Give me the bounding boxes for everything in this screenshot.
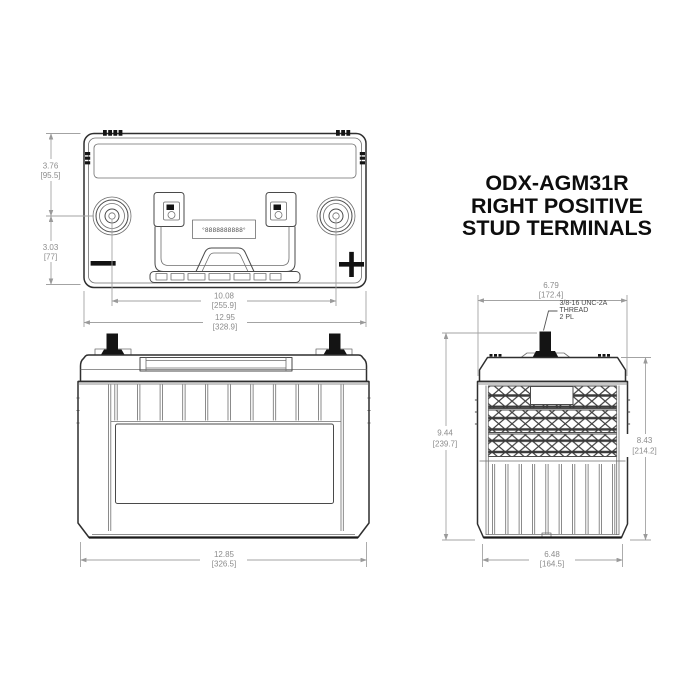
date-stamp-text: °8888888888° xyxy=(202,226,246,234)
side-lattice-pattern xyxy=(489,386,617,457)
callout-leader-line xyxy=(544,311,558,331)
dim-front-overall-in: 12.85 xyxy=(214,550,235,559)
negative-symbol: − xyxy=(86,240,120,286)
side-stud xyxy=(533,332,559,358)
thread-callout-line2: THREAD xyxy=(560,307,589,314)
top-view: °8888888888° − + xyxy=(84,130,368,288)
thread-callout-line1: 3/8-16 UNC-2A xyxy=(560,300,608,307)
dim-terminal-to-edge-in: 3.03 xyxy=(43,243,59,252)
product-title-line2: RIGHT POSITIVE xyxy=(432,195,682,218)
dim-edge-to-terminal-in: 3.76 xyxy=(43,162,59,171)
dim-terminal-spacing-mm: [255.9] xyxy=(212,301,236,310)
dim-terminal-to-edge-mm: [77] xyxy=(44,253,57,262)
dim-side-bottom-in: 6.48 xyxy=(544,550,560,559)
top-view-lid-band xyxy=(94,144,356,178)
dim-terminal-spacing-in: 10.08 xyxy=(214,292,235,301)
side-lid xyxy=(480,358,626,382)
front-view xyxy=(77,334,371,538)
handle-base-slots xyxy=(156,274,281,281)
positive-stud-front xyxy=(323,334,348,356)
positive-symbol: + xyxy=(335,241,369,287)
front-label-area xyxy=(116,424,334,504)
battery-technical-drawing: °8888888888° − + 3.76 [95.5] 3.03 [77] 1… xyxy=(0,0,700,700)
battery-spec-drawing-page: °8888888888° − + 3.76 [95.5] 3.03 [77] 1… xyxy=(0,0,700,700)
product-title-line3: STUD TERMINALS xyxy=(432,217,682,240)
dim-top-overall-in: 12.95 xyxy=(215,313,236,322)
product-title-line1: ODX-AGM31R xyxy=(432,172,682,195)
negative-stud-front xyxy=(101,334,126,356)
thread-callout-line3: 2 PL xyxy=(560,314,575,321)
dim-overall-height-mm: [239.7] xyxy=(433,440,457,449)
product-title: ODX-AGM31R RIGHT POSITIVE STUD TERMINALS xyxy=(432,172,682,240)
dim-case-height-mm: [214.2] xyxy=(632,447,656,456)
dim-front-overall-mm: [326.5] xyxy=(212,560,236,569)
dim-side-bottom-mm: [164.5] xyxy=(540,560,564,569)
dim-top-overall-mm: [328.9] xyxy=(213,323,237,332)
side-view xyxy=(475,332,630,538)
dim-case-height-in: 8.43 xyxy=(637,436,653,445)
dim-side-width-mm: [172.4] xyxy=(539,291,563,300)
dim-edge-to-terminal-mm: [95.5] xyxy=(40,171,60,180)
front-view-dimensions: 12.85 [326.5] xyxy=(81,542,367,569)
dim-side-width-in: 6.79 xyxy=(543,281,559,290)
dim-overall-height-in: 9.44 xyxy=(437,429,453,438)
side-label-window xyxy=(531,387,574,405)
